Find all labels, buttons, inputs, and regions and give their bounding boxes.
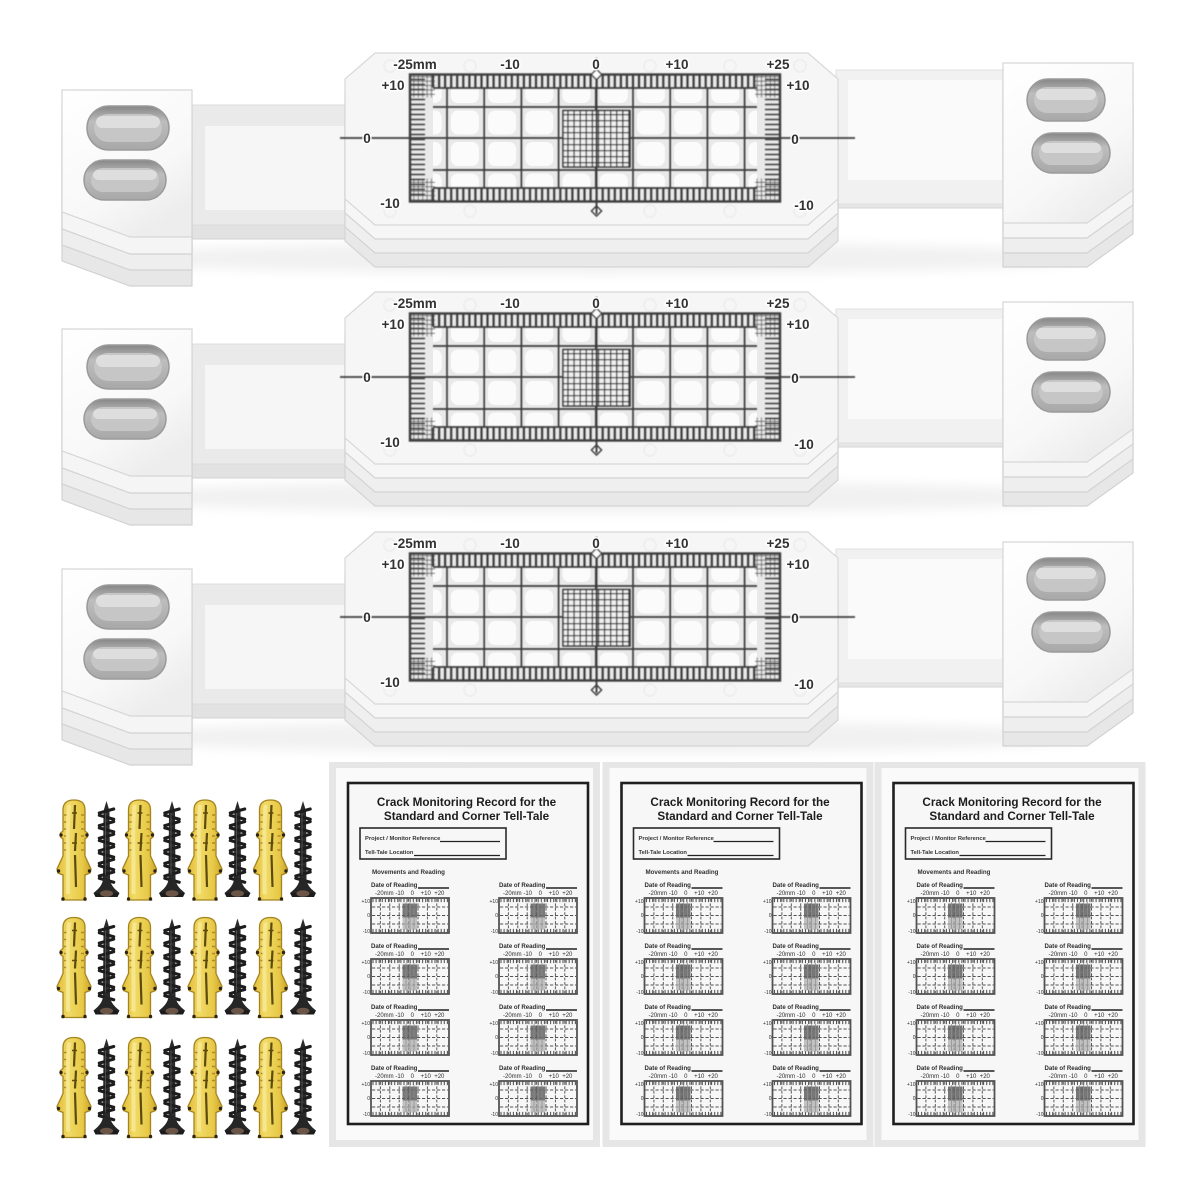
svg-text:+10: +10 [1035,899,1044,905]
svg-text:-10: -10 [636,929,643,935]
svg-text:+10: +10 [763,1082,772,1088]
svg-text:Date of Reading: Date of Reading [1045,882,1092,889]
svg-text:+10: +10 [1035,1082,1044,1088]
svg-text:Date of Reading: Date of Reading [917,882,964,889]
svg-text:Date of Reading: Date of Reading [1045,1004,1092,1011]
svg-text:Date of Reading: Date of Reading [773,1004,820,1011]
svg-text:0: 0 [592,536,600,551]
svg-text:-10: -10 [491,1112,498,1118]
svg-text:-10: -10 [764,1112,771,1118]
svg-text:+10: +10 [362,960,371,966]
svg-text:0: 0 [791,132,799,147]
svg-text:+10: +10 [382,317,405,332]
svg-text:Project / Monitor Reference: Project / Monitor Reference [911,836,987,842]
svg-text:0: 0 [495,913,498,919]
svg-text:+10: +10 [666,536,689,551]
svg-text:+10: +10 [666,57,689,72]
svg-text:-10: -10 [491,929,498,935]
svg-text:Date of Reading: Date of Reading [773,1065,820,1072]
svg-text:-20mm -10 0 +10 +20: -20mm -10 0 +10 +20 [649,1074,719,1080]
svg-text:0: 0 [791,611,799,626]
svg-text:-20mm -10 0 +10 +20: -20mm -10 0 +10 +20 [503,891,573,897]
svg-text:Standard and Corner Tell-Tale: Standard and Corner Tell-Tale [929,810,1095,823]
svg-text:-10: -10 [636,1112,643,1118]
svg-text:Movements and Reading: Movements and Reading [918,869,991,876]
svg-text:Date of Reading: Date of Reading [499,1065,546,1072]
svg-text:-25mm: -25mm [393,296,437,311]
svg-text:-10: -10 [491,990,498,996]
svg-text:Date of Reading: Date of Reading [917,943,964,950]
svg-text:+10: +10 [490,899,499,905]
svg-text:Date of Reading: Date of Reading [1045,1065,1092,1072]
svg-text:Date of Reading: Date of Reading [645,943,692,950]
svg-text:+10: +10 [362,1021,371,1027]
svg-text:Tell-Tale Location: Tell-Tale Location [365,850,414,856]
svg-text:-10: -10 [636,1051,643,1057]
svg-text:-20mm -10 0 +10 +20: -20mm -10 0 +10 +20 [1049,952,1119,958]
svg-text:+10: +10 [763,1021,772,1027]
svg-text:+10: +10 [635,1082,644,1088]
svg-text:0: 0 [913,1035,916,1041]
svg-text:-10: -10 [363,1112,370,1118]
svg-text:Date of Reading: Date of Reading [499,943,546,950]
svg-text:Crack Monitoring Record for th: Crack Monitoring Record for the [922,796,1102,809]
svg-text:-20mm -10 0 +10 +20: -20mm -10 0 +10 +20 [1049,1013,1119,1019]
svg-text:0: 0 [363,131,371,146]
svg-text:0: 0 [913,1096,916,1102]
svg-text:-10: -10 [500,296,520,311]
svg-text:0: 0 [913,913,916,919]
svg-text:+10: +10 [763,899,772,905]
svg-text:-20mm -10 0 +10 +20: -20mm -10 0 +10 +20 [921,952,991,958]
svg-text:0: 0 [641,1035,644,1041]
svg-text:+10: +10 [490,1082,499,1088]
svg-text:+25: +25 [767,536,790,551]
svg-text:-10: -10 [764,929,771,935]
svg-text:Tell-Tale Location: Tell-Tale Location [911,850,960,856]
svg-text:Project / Monitor Reference: Project / Monitor Reference [365,836,441,842]
svg-text:-20mm -10 0 +10 +20: -20mm -10 0 +10 +20 [1049,891,1119,897]
svg-text:-20mm -10 0 +10 +20: -20mm -10 0 +10 +20 [649,1013,719,1019]
svg-text:+10: +10 [382,557,405,572]
svg-text:-10: -10 [1036,929,1043,935]
svg-text:-10: -10 [500,536,520,551]
svg-text:0: 0 [641,1096,644,1102]
svg-text:0: 0 [495,974,498,980]
svg-text:+10: +10 [787,557,810,572]
svg-text:Date of Reading: Date of Reading [1045,943,1092,950]
svg-text:+10: +10 [787,78,810,93]
svg-text:Movements and Reading: Movements and Reading [646,869,719,876]
svg-text:-10: -10 [1036,1112,1043,1118]
svg-text:0: 0 [495,1096,498,1102]
svg-text:-20mm -10 0 +10 +20: -20mm -10 0 +10 +20 [1049,1074,1119,1080]
svg-text:Date of Reading: Date of Reading [371,1065,418,1072]
svg-text:+25: +25 [767,296,790,311]
svg-text:-25mm: -25mm [393,57,437,72]
svg-text:0: 0 [367,974,370,980]
svg-text:-20mm -10 0 +10 +20: -20mm -10 0 +10 +20 [375,891,445,897]
svg-text:Date of Reading: Date of Reading [917,1004,964,1011]
svg-text:-10: -10 [491,1051,498,1057]
svg-text:0: 0 [363,610,371,625]
svg-text:-20mm -10 0 +10 +20: -20mm -10 0 +10 +20 [777,891,847,897]
svg-text:-20mm -10 0 +10 +20: -20mm -10 0 +10 +20 [649,891,719,897]
svg-text:0: 0 [367,1096,370,1102]
svg-text:0: 0 [363,370,371,385]
svg-text:-20mm -10 0 +10 +20: -20mm -10 0 +10 +20 [503,1074,573,1080]
svg-text:-20mm -10 0 +10 +20: -20mm -10 0 +10 +20 [921,891,991,897]
svg-text:-20mm -10 0 +10 +20: -20mm -10 0 +10 +20 [375,952,445,958]
svg-text:-10: -10 [636,990,643,996]
svg-text:+10: +10 [907,899,916,905]
svg-text:0: 0 [641,913,644,919]
svg-text:Date of Reading: Date of Reading [499,1004,546,1011]
svg-text:0: 0 [1041,974,1044,980]
svg-text:Date of Reading: Date of Reading [917,1065,964,1072]
svg-text:+10: +10 [907,1021,916,1027]
svg-text:Date of Reading: Date of Reading [773,882,820,889]
svg-text:Date of Reading: Date of Reading [499,882,546,889]
svg-text:+10: +10 [362,899,371,905]
svg-text:-20mm -10 0 +10 +20: -20mm -10 0 +10 +20 [649,952,719,958]
svg-text:-20mm -10 0 +10 +20: -20mm -10 0 +10 +20 [375,1074,445,1080]
svg-text:-10: -10 [794,677,814,692]
svg-text:0: 0 [769,974,772,980]
svg-text:-10: -10 [1036,990,1043,996]
svg-text:-20mm -10 0 +10 +20: -20mm -10 0 +10 +20 [777,1074,847,1080]
svg-text:0: 0 [791,371,799,386]
svg-text:-20mm -10 0 +10 +20: -20mm -10 0 +10 +20 [921,1074,991,1080]
svg-text:-20mm -10 0 +10 +20: -20mm -10 0 +10 +20 [503,1013,573,1019]
svg-text:Date of Reading: Date of Reading [645,1004,692,1011]
svg-text:-10: -10 [380,675,400,690]
svg-text:0: 0 [913,974,916,980]
svg-text:Date of Reading: Date of Reading [645,1065,692,1072]
svg-text:+10: +10 [490,960,499,966]
svg-text:+10: +10 [907,1082,916,1088]
svg-text:Tell-Tale Location: Tell-Tale Location [639,850,688,856]
svg-text:+10: +10 [362,1082,371,1088]
svg-text:-10: -10 [764,990,771,996]
svg-text:+10: +10 [666,296,689,311]
svg-text:-10: -10 [380,435,400,450]
svg-text:+10: +10 [382,78,405,93]
svg-text:-10: -10 [794,198,814,213]
svg-text:Standard and Corner Tell-Tale: Standard and Corner Tell-Tale [384,810,550,823]
svg-text:-10: -10 [908,1112,915,1118]
svg-text:+10: +10 [635,1021,644,1027]
svg-text:Movements and Reading: Movements and Reading [372,869,445,876]
svg-text:-10: -10 [500,57,520,72]
svg-text:0: 0 [641,974,644,980]
svg-text:0: 0 [592,296,600,311]
svg-text:0: 0 [367,1035,370,1041]
svg-text:+10: +10 [1035,1021,1044,1027]
svg-text:-10: -10 [363,990,370,996]
svg-text:-20mm -10 0 +10 +20: -20mm -10 0 +10 +20 [777,1013,847,1019]
svg-text:Project / Monitor Reference: Project / Monitor Reference [639,836,715,842]
svg-text:Crack Monitoring Record for th: Crack Monitoring Record for the [650,796,830,809]
svg-text:-10: -10 [908,1051,915,1057]
svg-text:+10: +10 [490,1021,499,1027]
svg-text:+10: +10 [635,960,644,966]
svg-text:Standard and Corner Tell-Tale: Standard and Corner Tell-Tale [657,810,823,823]
svg-text:-20mm -10 0 +10 +20: -20mm -10 0 +10 +20 [503,952,573,958]
svg-text:+25: +25 [767,57,790,72]
svg-text:0: 0 [769,1035,772,1041]
svg-text:0: 0 [495,1035,498,1041]
svg-text:-10: -10 [764,1051,771,1057]
svg-text:0: 0 [592,57,600,72]
svg-text:Date of Reading: Date of Reading [773,943,820,950]
svg-text:-10: -10 [794,437,814,452]
svg-text:-10: -10 [363,929,370,935]
svg-text:+10: +10 [1035,960,1044,966]
svg-text:0: 0 [769,1096,772,1102]
svg-text:-25mm: -25mm [393,536,437,551]
svg-text:0: 0 [1041,1096,1044,1102]
svg-text:-20mm -10 0 +10 +20: -20mm -10 0 +10 +20 [777,952,847,958]
svg-text:Date of Reading: Date of Reading [645,882,692,889]
svg-text:+10: +10 [635,899,644,905]
svg-text:0: 0 [1041,913,1044,919]
svg-text:+10: +10 [907,960,916,966]
svg-text:-10: -10 [380,196,400,211]
svg-text:-10: -10 [363,1051,370,1057]
svg-text:+10: +10 [763,960,772,966]
svg-text:+10: +10 [787,317,810,332]
svg-text:-10: -10 [1036,1051,1043,1057]
svg-text:-20mm -10 0 +10 +20: -20mm -10 0 +10 +20 [921,1013,991,1019]
svg-text:-10: -10 [908,990,915,996]
svg-text:-20mm -10 0 +10 +20: -20mm -10 0 +10 +20 [375,1013,445,1019]
svg-text:0: 0 [1041,1035,1044,1041]
svg-text:0: 0 [769,913,772,919]
svg-text:0: 0 [367,913,370,919]
svg-text:Crack Monitoring Record for th: Crack Monitoring Record for the [377,796,557,809]
svg-text:Date of Reading: Date of Reading [371,882,418,889]
svg-text:Date of Reading: Date of Reading [371,943,418,950]
svg-text:-10: -10 [908,929,915,935]
svg-text:Date of Reading: Date of Reading [371,1004,418,1011]
